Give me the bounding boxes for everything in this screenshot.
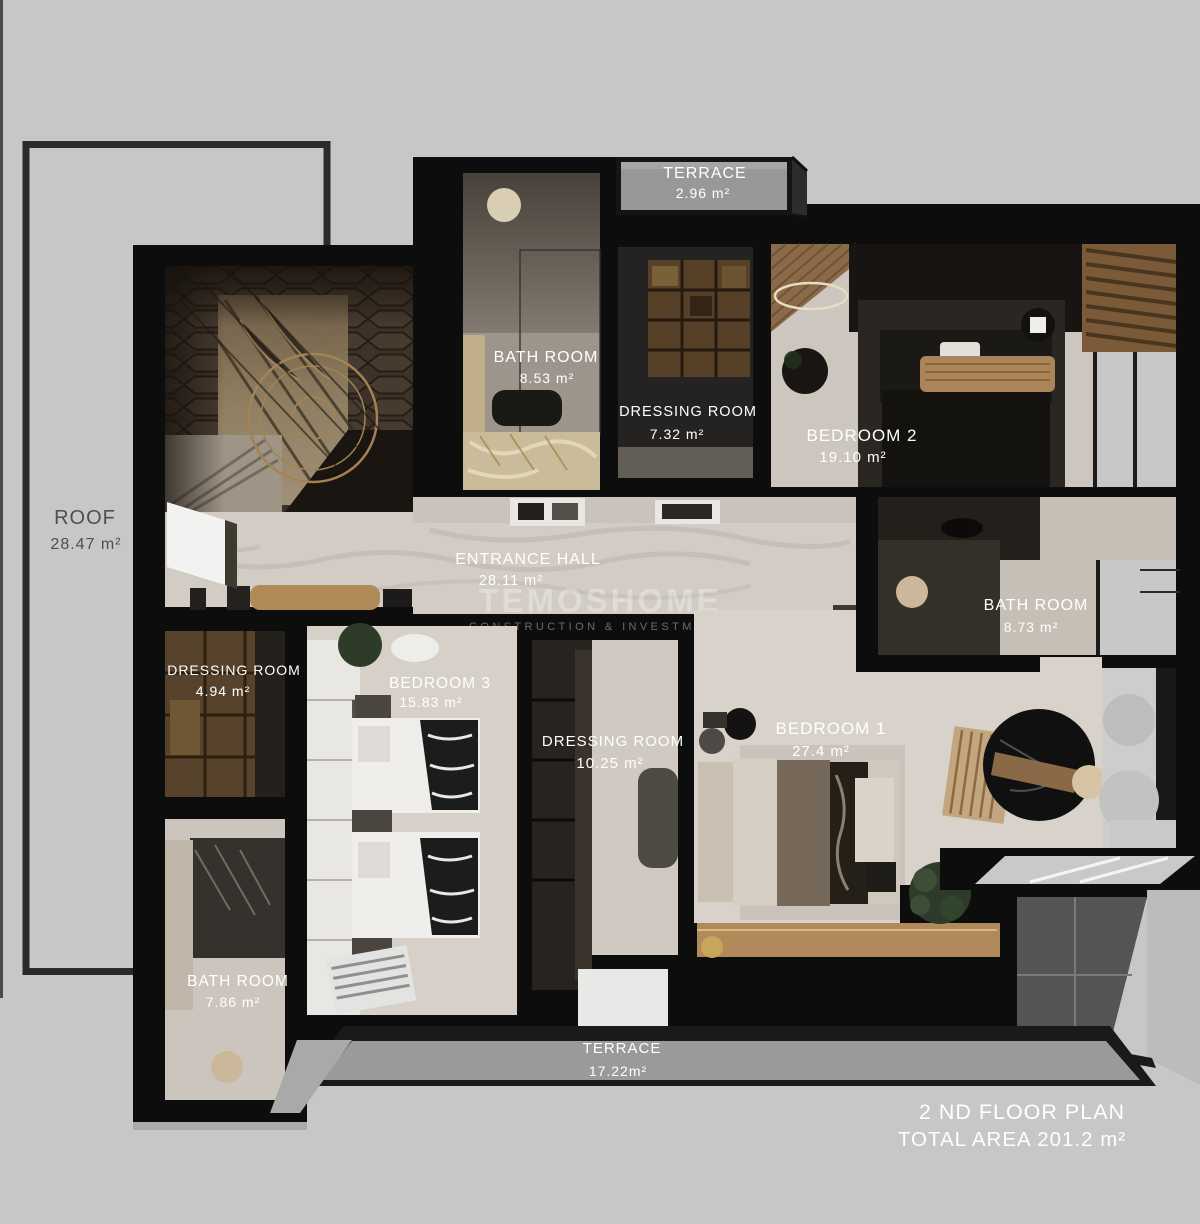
svg-text:ENTRANCE HALL: ENTRANCE HALL	[455, 551, 600, 568]
svg-text:8.73 m²: 8.73 m²	[1004, 619, 1058, 635]
svg-text:19.10 m²: 19.10 m²	[819, 449, 886, 466]
svg-text:17.22m²: 17.22m²	[589, 1063, 647, 1079]
svg-text:DRESSING ROOM: DRESSING ROOM	[167, 662, 301, 678]
svg-text:BEDROOM 1: BEDROOM 1	[775, 719, 886, 738]
svg-text:TOTAL AREA 201.2 m²: TOTAL AREA 201.2 m²	[898, 1128, 1126, 1151]
svg-text:7.86 m²: 7.86 m²	[206, 994, 260, 1010]
svg-text:4.94 m²: 4.94 m²	[196, 683, 250, 699]
svg-text:DRESSING ROOM: DRESSING ROOM	[542, 733, 684, 750]
svg-text:15.83 m²: 15.83 m²	[399, 694, 462, 710]
svg-text:BATH ROOM: BATH ROOM	[187, 973, 289, 990]
svg-text:ROOF: ROOF	[54, 507, 116, 529]
svg-text:TERRACE: TERRACE	[583, 1040, 662, 1057]
svg-text:BATH ROOM: BATH ROOM	[984, 597, 1089, 614]
svg-text:7.32 m²: 7.32 m²	[650, 426, 704, 442]
svg-text:BATH ROOM: BATH ROOM	[494, 349, 599, 366]
svg-text:2 ND FLOOR PLAN: 2 ND FLOOR PLAN	[919, 1100, 1125, 1124]
svg-text:10.25 m²: 10.25 m²	[576, 755, 643, 772]
svg-text:DRESSING ROOM: DRESSING ROOM	[619, 404, 757, 420]
svg-text:BEDROOM 3: BEDROOM 3	[389, 675, 491, 692]
svg-text:TEMOSHOME: TEMOSHOME	[478, 582, 721, 619]
svg-text:8.53 m²: 8.53 m²	[520, 370, 574, 386]
svg-text:BEDROOM 2: BEDROOM 2	[806, 426, 917, 445]
svg-text:28.47 m²: 28.47 m²	[50, 536, 121, 553]
svg-text:2.96 m²: 2.96 m²	[676, 185, 730, 201]
svg-text:27.4 m²: 27.4 m²	[792, 743, 850, 760]
svg-text:TERRACE: TERRACE	[663, 165, 746, 182]
